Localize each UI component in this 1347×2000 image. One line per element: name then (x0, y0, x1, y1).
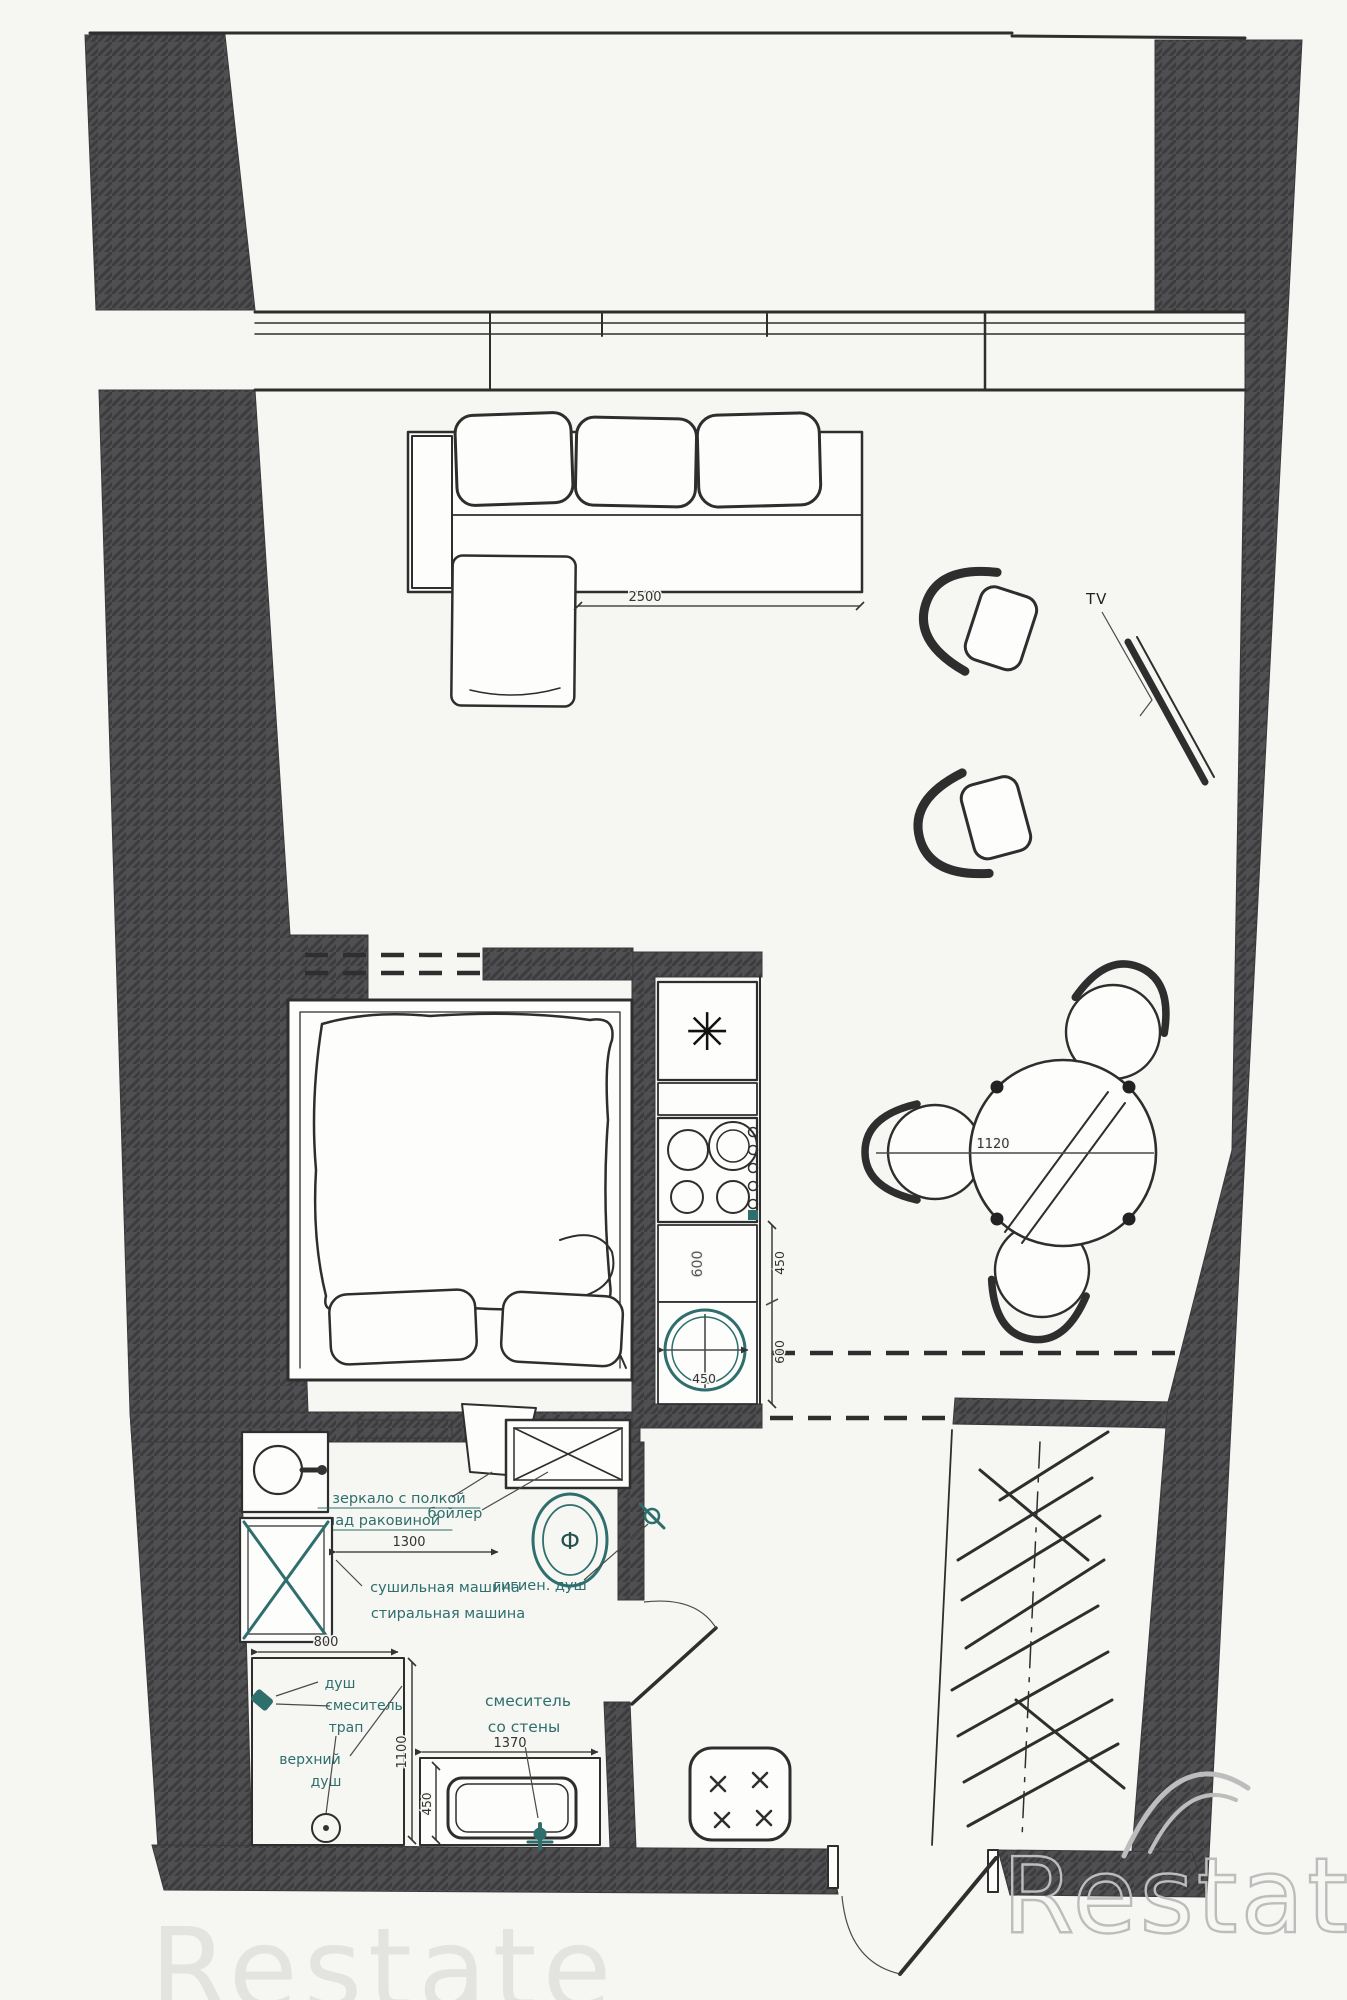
shower-label: душ (325, 1676, 356, 1692)
armchair-1-seat (962, 583, 1041, 673)
sofa-cushion-2 (575, 417, 697, 507)
shower-drain-dot (323, 1825, 329, 1831)
pouf (690, 1748, 790, 1840)
tv-leader (1102, 612, 1152, 716)
freezer-star-icon: ✳ (685, 1003, 729, 1063)
armchair-2 (906, 760, 1037, 888)
sofa-armrest (412, 436, 452, 588)
wall-hall-top (953, 1398, 1172, 1428)
table-dot-nw (991, 1081, 1004, 1094)
wall-left-lower (130, 1412, 252, 1848)
bath-note-line1: зеркало с полкой (332, 1491, 465, 1507)
armchair-1 (910, 554, 1045, 686)
dining-table: 1120 (865, 949, 1184, 1347)
sofa-cushion-3 (697, 412, 821, 507)
bathroom: зеркало с полкой над раковиной сушильная… (240, 1404, 716, 1848)
kitchen-shelf (658, 1083, 757, 1115)
wardrobe-boundary (932, 1430, 952, 1845)
table-dot-sw (991, 1213, 1004, 1226)
bed-pillow-2 (500, 1291, 623, 1367)
washer-leader (336, 1560, 362, 1586)
kitchen-side-dim-bottom: 600 (772, 1340, 787, 1364)
watermark-text: Restate (1002, 1835, 1347, 1957)
dining-chair-left (865, 1104, 982, 1200)
balcony-window-band (90, 33, 1245, 390)
boiler-label: бойлер (428, 1506, 483, 1522)
shower-head (250, 1688, 274, 1712)
bath-dim-1300-label: 1300 (392, 1535, 425, 1550)
vanity-dim-width-label: 1370 (493, 1736, 526, 1751)
bath-note-leader (452, 1472, 492, 1497)
wall-mixer-line1: смеситель (485, 1692, 571, 1710)
vanity-tap-dot (534, 1828, 547, 1841)
shower-leader-1 (276, 1682, 318, 1696)
shower-dim-width-label: 800 (314, 1635, 339, 1650)
tv-unit: TV (1085, 590, 1214, 782)
floor-plan: 2500 TV ✳ (0, 0, 1347, 2000)
wall-bottom-left (152, 1845, 838, 1894)
floor-plan-svg: 2500 TV ✳ (0, 0, 1347, 2000)
sofa: 2500 (408, 412, 862, 707)
overhead-shower-line1: верхний (279, 1752, 340, 1768)
entry-door-jamb-left (828, 1846, 838, 1888)
bathroom-shelf-bar (358, 1420, 452, 1438)
toilet-mark: Ф (560, 1529, 580, 1555)
wall-bathroom-pier (604, 1702, 636, 1848)
kitchen-counter (658, 1225, 757, 1302)
overhead-shower-line2: душ (311, 1774, 342, 1790)
table-dot-ne (1123, 1081, 1136, 1094)
shower-dim-depth-label: 1100 (395, 1735, 410, 1768)
bathroom-door-leaf (632, 1628, 716, 1704)
bath-basin-tap-dot (317, 1465, 327, 1475)
sofa-dim-label: 2500 (628, 590, 661, 605)
entry-door-leaf (900, 1858, 996, 1974)
bed-pillow-1 (329, 1289, 478, 1365)
bed (288, 1000, 632, 1380)
entry-door-swing (842, 1896, 900, 1974)
bed-blanket (314, 1014, 613, 1310)
wall-right (1132, 40, 1302, 1895)
kitchen: ✳ 600 450 450 600 (658, 977, 787, 1404)
balcony-outer-edge-right (1012, 36, 1245, 38)
bath-note-line2: над раковиной (326, 1513, 440, 1529)
dining-chair-left-seat (888, 1105, 982, 1199)
kitchen-sink-dim: 450 (692, 1371, 716, 1386)
shower-drain-label: трап (329, 1720, 364, 1736)
vanity-dim-depth-label: 450 (420, 1793, 434, 1816)
wall-left-pillar (85, 35, 255, 310)
wall-bed-headboard-bar (483, 948, 633, 980)
table-dim-label: 1120 (976, 1137, 1009, 1152)
armchair-2-seat (958, 774, 1034, 862)
watermark-echo: Restate (150, 1905, 617, 2000)
shower-leader-2 (276, 1704, 330, 1706)
table-dot-se (1123, 1213, 1136, 1226)
sofa-cushion-1 (454, 412, 573, 506)
kitchen-counter-label: 600 (690, 1251, 706, 1278)
wardrobe-hangers (952, 1432, 1124, 1826)
sofa-chaise (451, 555, 576, 706)
wall-mixer-line2: со стены (488, 1718, 560, 1736)
kitchen-side-dim-top: 450 (772, 1251, 787, 1275)
washer-label: стиральная машина (371, 1606, 525, 1622)
hygienic-shower-label: гигиен. душ (493, 1578, 587, 1594)
stove-valve (748, 1210, 758, 1220)
tv-label: TV (1085, 590, 1107, 608)
tv-stand (1137, 637, 1214, 777)
bathroom-door-swing (644, 1601, 716, 1628)
tv-screen (1128, 642, 1205, 782)
